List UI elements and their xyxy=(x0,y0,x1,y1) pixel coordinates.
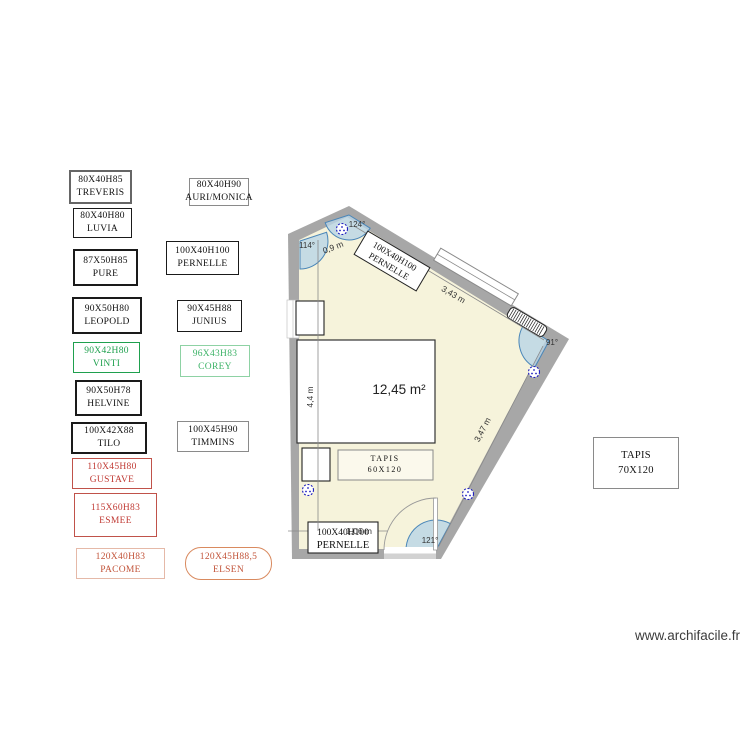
legend-timmins-name: TIMMINS xyxy=(191,437,234,450)
outlet-icon-right[interactable] xyxy=(529,367,540,378)
furniture-pernelle-bottom-line2: PERNELLE xyxy=(317,540,370,551)
legend-timmins-dims: 100X45H90 xyxy=(188,424,238,437)
legend-tapis-line1: TAPIS xyxy=(621,448,651,463)
legend-esmee-name: ESMEE xyxy=(99,515,132,528)
legend-pacome-dims: 120X40H83 xyxy=(96,551,146,564)
legend-item-gustave[interactable]: 110X45H80 GUSTAVE xyxy=(72,458,152,489)
legend-pure-dims: 87X50H85 xyxy=(83,255,128,268)
legend-item-pacome[interactable]: 120X40H83 PACOME xyxy=(76,548,165,579)
outlet-icon-left[interactable] xyxy=(303,485,314,496)
legend-helvine-name: HELVINE xyxy=(87,398,129,411)
legend-luvia-dims: 80X40H80 xyxy=(80,210,125,223)
legend-junius-name: JUNIUS xyxy=(192,316,227,329)
legend-item-auri-monica[interactable]: 80X40H90 AURI/MONICA xyxy=(189,178,249,206)
legend-item-helvine[interactable]: 90X50H78 HELVINE xyxy=(75,380,142,416)
legend-helvine-dims: 90X50H78 xyxy=(86,385,131,398)
legend-item-junius[interactable]: 90X45H88 JUNIUS xyxy=(177,300,242,332)
rug-60x120-label-line1: TAPIS xyxy=(370,454,399,463)
legend-leopold-dims: 90X50H80 xyxy=(85,303,130,316)
outlet-icon-door[interactable] xyxy=(463,489,474,500)
legend-corey-name: COREY xyxy=(198,361,232,374)
legend-auri-dims: 80X40H90 xyxy=(197,179,242,192)
angle-label-124: 124° xyxy=(349,220,366,229)
legend-treveris-name: TREVERIS xyxy=(77,187,125,200)
legend-item-leopold[interactable]: 90X50H80 LEOPOLD xyxy=(72,297,142,334)
nightstand-bottom[interactable] xyxy=(302,448,330,481)
legend-item-esmee[interactable]: 115X60H83 ESMEE xyxy=(74,493,157,537)
legend-luvia-name: LUVIA xyxy=(87,223,118,236)
nightstand-top[interactable] xyxy=(296,301,324,335)
angle-label-114: 114° xyxy=(299,241,315,250)
dim-label-1-06: 1,06 m xyxy=(346,526,372,536)
angle-label-91: 91° xyxy=(546,338,558,347)
outlet-icon-top[interactable] xyxy=(337,224,348,235)
legend-esmee-dims: 115X60H83 xyxy=(91,502,140,515)
legend-elsen-dims: 120X45H88,5 xyxy=(200,551,257,564)
legend-tilo-dims: 100X42X88 xyxy=(84,425,134,438)
legend-item-luvia[interactable]: 80X40H80 LUVIA xyxy=(73,208,132,238)
legend-elsen-name: ELSEN xyxy=(213,564,244,577)
legend-tapis-line2: 70X120 xyxy=(618,463,654,478)
rug-60x120-label-line2: 60X120 xyxy=(368,465,403,474)
legend-pernelle-name: PERNELLE xyxy=(178,258,228,271)
floorplan-canvas: TAPIS 60X120 100X40H100 PERNELLE 100X40H… xyxy=(0,0,750,750)
legend-vinti-dims: 90X42H80 xyxy=(84,345,129,358)
watermark-archifacile: www.archifacile.fr xyxy=(635,628,740,643)
legend-item-treveris[interactable]: 80X40H85 TREVERIS xyxy=(69,170,132,204)
legend-auri-name: AURI/MONICA xyxy=(185,192,253,205)
legend-junius-dims: 90X45H88 xyxy=(187,303,232,316)
room-area-label: 12,45 m² xyxy=(372,382,426,397)
legend-corey-dims: 96X43H83 xyxy=(193,348,238,361)
legend-gustave-name: GUSTAVE xyxy=(90,474,134,487)
legend-item-elsen[interactable]: 120X45H88,5 ELSEN xyxy=(185,547,272,580)
legend-gustave-dims: 110X45H80 xyxy=(87,461,136,474)
legend-item-timmins[interactable]: 100X45H90 TIMMINS xyxy=(177,421,249,452)
rug-60x120[interactable]: TAPIS 60X120 xyxy=(338,450,433,480)
legend-item-vinti[interactable]: 90X42H80 VINTI xyxy=(73,342,140,373)
legend-pacome-name: PACOME xyxy=(100,564,141,577)
legend-item-tilo[interactable]: 100X42X88 TILO xyxy=(71,422,147,454)
legend-treveris-dims: 80X40H85 xyxy=(78,174,123,187)
legend-item-tapis-70x120[interactable]: TAPIS 70X120 xyxy=(593,437,679,489)
legend-item-corey[interactable]: 96X43H83 COREY xyxy=(180,345,250,377)
legend-pernelle-dims: 100X40H100 xyxy=(175,245,230,258)
legend-item-pure[interactable]: 87X50H85 PURE xyxy=(73,249,138,286)
legend-vinti-name: VINTI xyxy=(93,358,120,371)
angle-label-121: 121° xyxy=(422,536,439,545)
legend-pure-name: PURE xyxy=(93,268,118,281)
dim-label-4-4: 4,4 m xyxy=(305,386,315,407)
legend-leopold-name: LEOPOLD xyxy=(84,316,129,329)
legend-tilo-name: TILO xyxy=(98,438,121,451)
legend-item-pernelle[interactable]: 100X40H100 PERNELLE xyxy=(166,241,239,275)
